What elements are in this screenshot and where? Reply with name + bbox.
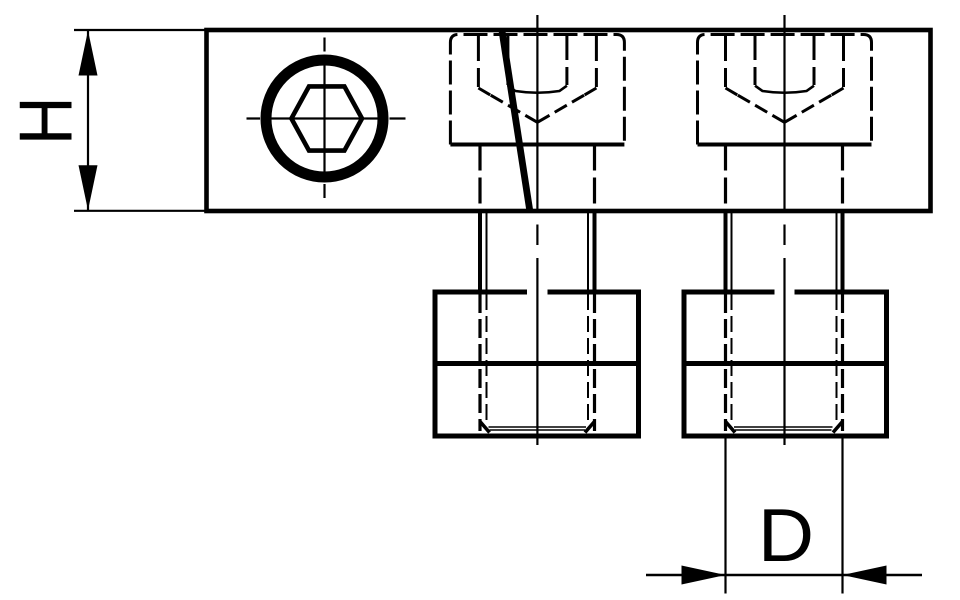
svg-text:H: H bbox=[4, 96, 88, 145]
svg-text:D: D bbox=[758, 494, 814, 577]
